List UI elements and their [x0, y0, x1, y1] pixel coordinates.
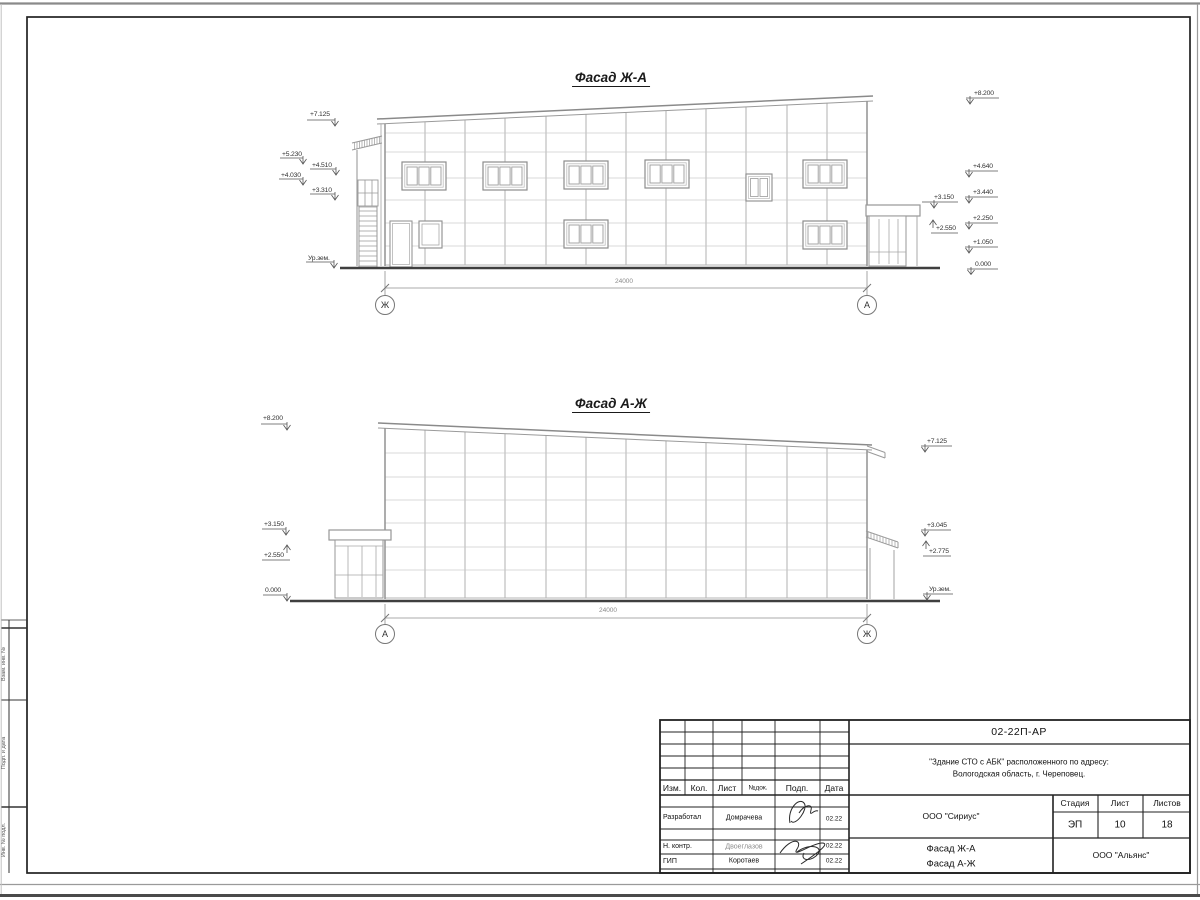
f2-mark-l2: +2.550: [264, 552, 284, 559]
f1-mark-l4: +3.310: [312, 187, 332, 194]
f2-mark-l0: +8.200: [263, 415, 283, 422]
rev-header-data: Дата: [825, 783, 844, 793]
facade2-body: [378, 423, 885, 599]
f1-mark-r7: 0.000: [975, 261, 991, 268]
project-title-line2: Вологодская область, г. Череповец.: [953, 770, 1086, 779]
sheet-title-line2: Фасад А-Ж: [927, 859, 976, 870]
f2-mark-r1: +3.045: [927, 522, 947, 529]
sheet-title-line1: Фасад Ж-А: [927, 844, 976, 855]
f1-axis-left-label: Ж: [381, 300, 389, 310]
f1-mark-r6: +1.050: [973, 239, 993, 246]
row1-date: 02.22: [826, 843, 842, 850]
row2-date: 02.22: [826, 858, 842, 865]
f2-mark-l3: 0.000: [265, 587, 281, 594]
client-org: ООО "Альянс": [1093, 850, 1150, 860]
f1-mark-l2: +4.510: [312, 162, 332, 169]
f2-mark-l1: +3.150: [264, 521, 284, 528]
facade1-title: Фасад Ж-А: [572, 70, 650, 87]
f2-mark-r0: +7.125: [927, 438, 947, 445]
sheets-total: 18: [1161, 820, 1172, 831]
drawing-sheet: Фасад Ж-А Фасад А-Ж +7.125 +5.230 +4.510…: [0, 0, 1200, 900]
f1-axis-right-label: А: [864, 300, 870, 310]
facade1-entrance-vestibule: [866, 205, 920, 266]
f1-mark-r1: +4.640: [973, 163, 993, 170]
side-stamp-label-0: Взам. инв. №: [1, 647, 7, 681]
f1-mark-l5: Ур.зем.: [308, 255, 330, 262]
facade1-grid: [385, 103, 867, 265]
rev-header-kol: Кол.: [691, 783, 708, 793]
f1-mark-r2: +3.440: [973, 189, 993, 196]
f2-axis-right-label: Ж: [863, 629, 871, 639]
f1-mark-r0: +8.200: [974, 90, 994, 97]
facade1-windows: [390, 160, 847, 267]
facade1-stair-annex: [352, 124, 382, 267]
rev-header-list: Лист: [718, 783, 736, 793]
facade2-grid: [385, 430, 867, 598]
stage-value: ЭП: [1068, 820, 1082, 831]
row0-name: Домрачева: [726, 815, 762, 822]
f2-mark-r2: +2.775: [929, 548, 949, 555]
stage-header: Стадия: [1061, 798, 1090, 808]
project-title-line1: "Здание СТО с АБК" расположенного по адр…: [929, 758, 1109, 767]
facade2-title: Фасад А-Ж: [572, 396, 650, 413]
f1-mark-r3: +3.150: [934, 194, 954, 201]
facade1-drawing: [279, 96, 999, 315]
facade2-dimension: [376, 604, 877, 644]
side-stamp-label-1: Подп. и дата: [1, 737, 7, 769]
rev-header-izm: Изм.: [663, 783, 681, 793]
facade2-entrance-vestibule: [329, 530, 391, 598]
row2-name: Коротаев: [729, 858, 759, 865]
side-stamp-label-2: Инв. № подл.: [1, 823, 7, 857]
signature-strokes: [780, 801, 825, 864]
f2-axis-left-label: А: [382, 629, 388, 639]
f1-mark-l3: +4.030: [281, 172, 301, 179]
facade2-leanto-canopy: [866, 531, 898, 599]
row1-role: Н. контр.: [663, 843, 692, 850]
sheets-header: Листов: [1153, 798, 1181, 808]
rev-header-podp: Подп.: [786, 783, 809, 793]
row2-role: ГИП: [663, 858, 677, 865]
f2-dimension-label: 24000: [599, 607, 617, 614]
f1-mark-l1: +5.230: [282, 151, 302, 158]
row0-date: 02.22: [826, 816, 842, 823]
row1-name: Двоеглазов: [725, 844, 762, 851]
f1-dimension-label: 24000: [615, 278, 633, 285]
document-code: 02-22П-АР: [991, 726, 1047, 738]
sheet-number: 10: [1114, 820, 1125, 831]
sheet-header: Лист: [1111, 798, 1129, 808]
f1-mark-r4: +2.250: [973, 215, 993, 222]
designer-org: ООО "Сириус": [923, 811, 980, 821]
f1-mark-r5: +2.550: [936, 225, 956, 232]
f1-mark-l0: +7.125: [310, 111, 330, 118]
facade1-body: [377, 96, 873, 266]
row0-role: Разработал: [663, 814, 701, 821]
rev-header-ndok: №док.: [748, 785, 767, 792]
f2-mark-r3: Ур.зем.: [929, 586, 951, 593]
